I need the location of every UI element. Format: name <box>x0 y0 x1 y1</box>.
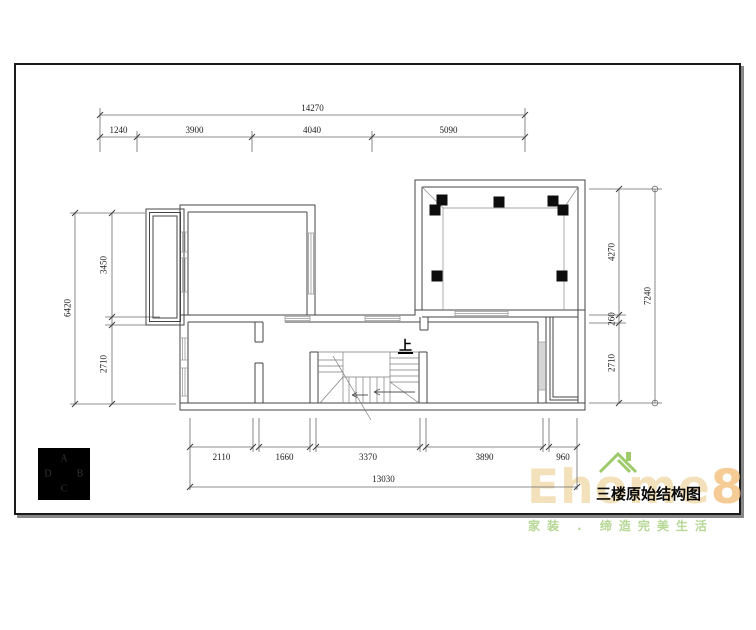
dim-bottom-seg4: 3890 <box>426 452 543 462</box>
floorplan-sheet: Ehome8 家装 . 缔造完美生活 <box>0 0 756 630</box>
dim-bottom-seg1: 2110 <box>190 452 253 462</box>
dim-right-seg1: 4270 <box>608 243 617 261</box>
compass-letter-d: D <box>44 469 51 480</box>
compass-letter-c: C <box>61 484 68 495</box>
stairs-up-label: 上 <box>398 339 413 354</box>
dim-right-total: 7240 <box>644 287 653 305</box>
dim-left-total: 6420 <box>64 299 73 317</box>
compass-letter-b: B <box>77 469 84 480</box>
dim-left-seg1: 3450 <box>100 256 109 274</box>
compass-letter-a: A <box>60 454 67 465</box>
dim-bottom-total: 13030 <box>190 474 577 484</box>
walls <box>146 180 585 410</box>
dim-bottom-seg5: 960 <box>549 452 577 462</box>
plan-linework <box>0 0 756 630</box>
dim-top-seg1: 1240 <box>100 125 137 135</box>
dim-top-total: 14270 <box>100 103 525 113</box>
dimension-ticks <box>72 112 622 490</box>
windows <box>181 232 546 396</box>
compass-block: A B C D <box>38 448 90 500</box>
dim-bottom-seg2: 1660 <box>259 452 310 462</box>
dim-bottom-seg3: 3370 <box>316 452 420 462</box>
dim-top-seg3: 4040 <box>252 125 372 135</box>
columns <box>430 195 569 282</box>
dim-right-seg3: 2710 <box>608 354 617 372</box>
dimension-lines <box>70 108 662 490</box>
drawing-title: 三楼原始结构图 <box>596 483 702 504</box>
dim-top-seg2: 3900 <box>137 125 252 135</box>
dim-top-seg4: 5090 <box>372 125 525 135</box>
dim-left-seg2: 2710 <box>100 355 109 373</box>
dim-right-seg2: 260 <box>608 312 617 326</box>
